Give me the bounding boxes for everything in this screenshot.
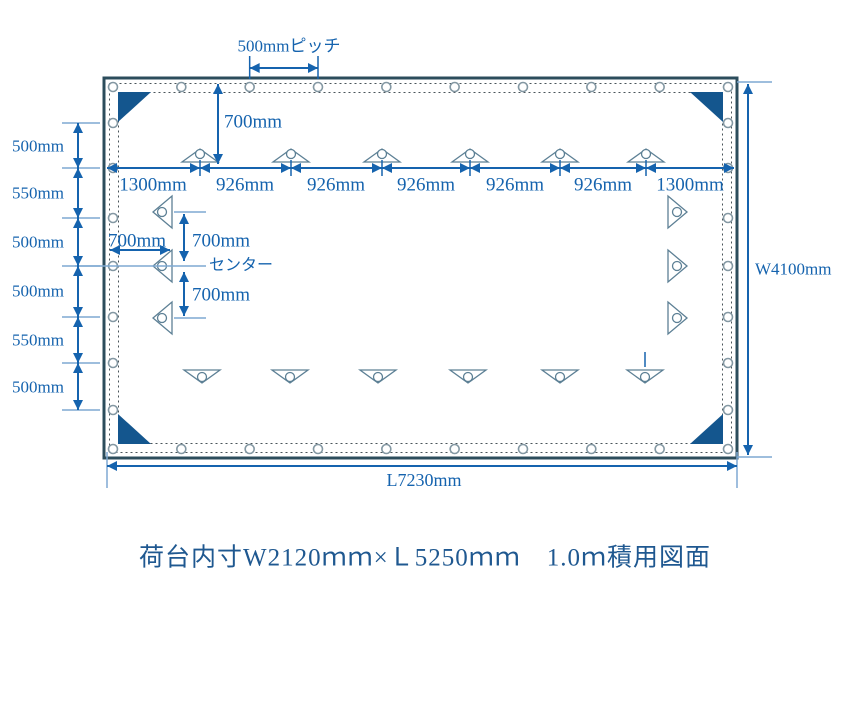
grommet-icon bbox=[724, 214, 733, 223]
overall-width-label: W4100mm bbox=[755, 261, 832, 278]
left-segment-dimension-label: 550mm bbox=[12, 332, 64, 349]
center-lower-dimension-label: 700mm bbox=[192, 286, 250, 305]
grommet-icon bbox=[177, 83, 186, 92]
grommet-icon bbox=[382, 445, 391, 454]
grommet-icon bbox=[450, 445, 459, 454]
top-segment-dimension-label: 926mm bbox=[216, 176, 274, 195]
grommet-icon bbox=[587, 83, 596, 92]
grommet-icon bbox=[724, 359, 733, 368]
hook-ring-icon bbox=[673, 314, 682, 323]
grommet-icon bbox=[109, 445, 118, 454]
hook-ring-icon bbox=[464, 373, 473, 382]
top-offset-dimension-label: 700mm bbox=[224, 113, 282, 132]
hook-ring-icon bbox=[378, 150, 387, 159]
grommet-icon bbox=[314, 445, 323, 454]
tarp-drawing-canvas: 500mmピッチ 700mm 1300mm 926mm 926mm 926mm … bbox=[0, 0, 851, 711]
left-segment-dimension-label: 500mm bbox=[12, 283, 64, 300]
hook-ring-icon bbox=[673, 262, 682, 271]
hook-ring-icon bbox=[641, 373, 650, 382]
center-upper-dimension-label: 700mm bbox=[192, 232, 250, 251]
grommet-icon bbox=[245, 445, 254, 454]
grommet-icon bbox=[587, 445, 596, 454]
grommet-icon bbox=[245, 83, 254, 92]
left-segment-dimension-label: 500mm bbox=[12, 379, 64, 396]
hook-ring-icon bbox=[556, 150, 565, 159]
grommet-icon bbox=[724, 262, 733, 271]
top-segment-dimension-label: 926mm bbox=[307, 176, 365, 195]
top-segment-dimension-label: 926mm bbox=[486, 176, 544, 195]
top-segment-dimension-label: 1300mm bbox=[119, 176, 187, 195]
grommet-icon bbox=[109, 83, 118, 92]
grommet-icon bbox=[109, 359, 118, 368]
pitch-dimension-label: 500mmピッチ bbox=[238, 38, 341, 55]
drawing-caption: 荷台内寸W2120ｍｍ×Ｌ5250ｍｍ 1.0ｍ積用図面 bbox=[139, 546, 711, 571]
grommet-icon bbox=[450, 83, 459, 92]
grommet-icon bbox=[655, 445, 664, 454]
grommet-icon bbox=[519, 83, 528, 92]
grommet-icon bbox=[109, 406, 118, 415]
hook-ring-icon bbox=[287, 150, 296, 159]
hook-ring-icon bbox=[642, 150, 651, 159]
grommet-icon bbox=[655, 83, 664, 92]
grommet-icon bbox=[724, 445, 733, 454]
hook-ring-icon bbox=[466, 150, 475, 159]
grommet-icon bbox=[724, 313, 733, 322]
top-segment-dimension-label: 1300mm bbox=[656, 176, 724, 195]
hook-ring-icon bbox=[158, 314, 167, 323]
grommet-icon bbox=[109, 313, 118, 322]
hook-ring-icon bbox=[158, 208, 167, 217]
grommet-icon bbox=[382, 83, 391, 92]
grommet-icon bbox=[519, 445, 528, 454]
grommet-icon bbox=[314, 83, 323, 92]
grommet-icon bbox=[109, 214, 118, 223]
overall-length-label: L7230mm bbox=[387, 471, 462, 489]
hook-ring-icon bbox=[556, 373, 565, 382]
hook-ring-icon bbox=[374, 373, 383, 382]
tarp-outline bbox=[104, 78, 737, 458]
hook-ring-icon bbox=[673, 208, 682, 217]
hook-ring-icon bbox=[196, 150, 205, 159]
grommet-icon bbox=[724, 119, 733, 128]
hook-ring-icon bbox=[198, 373, 207, 382]
tarp-sheet bbox=[104, 78, 737, 458]
center-line-label: センター bbox=[209, 258, 273, 274]
left-segment-dimension-label: 500mm bbox=[12, 234, 64, 251]
tarp-diagram bbox=[0, 0, 851, 711]
grommet-icon bbox=[109, 119, 118, 128]
left-offset-dimension-label: 700mm bbox=[108, 232, 166, 251]
top-segment-dimension-label: 926mm bbox=[397, 176, 455, 195]
grommet-icon bbox=[724, 83, 733, 92]
top-segment-dimension-label: 926mm bbox=[574, 176, 632, 195]
hook-ring-icon bbox=[286, 373, 295, 382]
grommet-icon bbox=[177, 445, 186, 454]
left-segment-dimension-label: 550mm bbox=[12, 185, 64, 202]
grommet-icon bbox=[724, 406, 733, 415]
left-segment-dimension-label: 500mm bbox=[12, 138, 64, 155]
